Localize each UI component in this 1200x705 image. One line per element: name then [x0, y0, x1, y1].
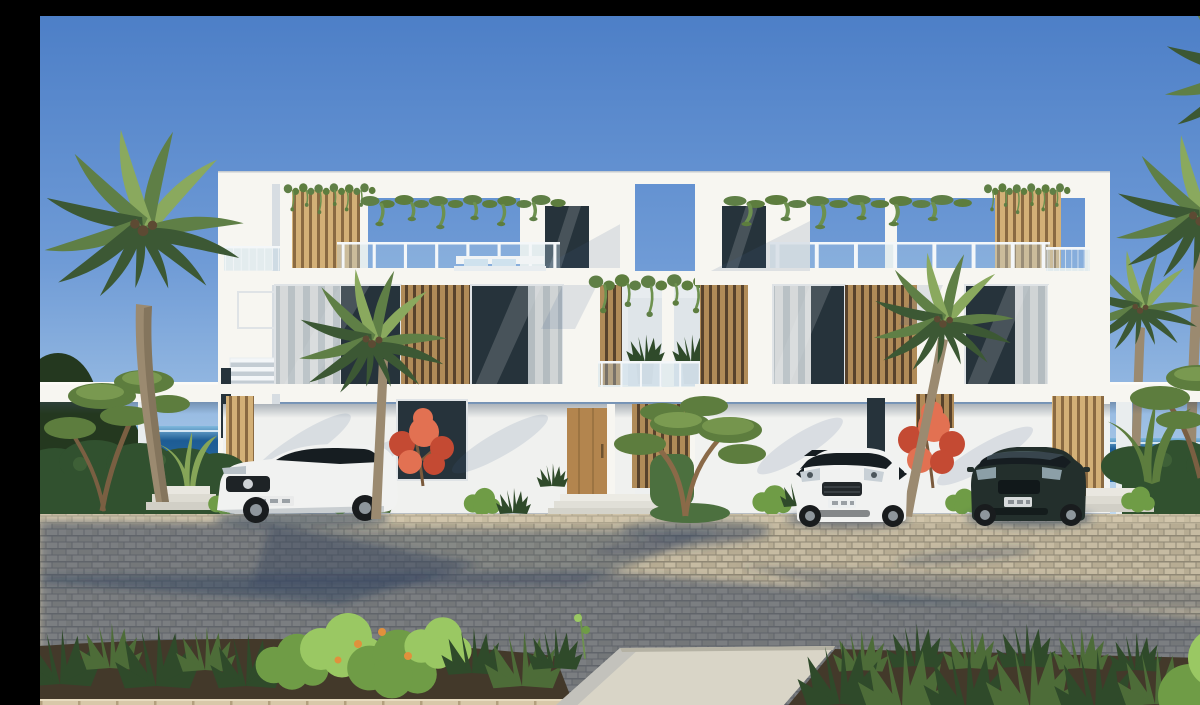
white-suv-mirror-left — [792, 468, 799, 473]
entry-steps-left — [548, 494, 668, 514]
roof-slab — [218, 172, 1110, 184]
dark-suv-grille — [998, 480, 1040, 494]
curtains-right-a — [773, 285, 811, 388]
louver-panel-left-lower — [230, 358, 276, 384]
dark-suv-mirror-right — [1083, 467, 1090, 472]
rooftop-railing-left — [337, 242, 560, 268]
slat-panel-level2-right-inner — [700, 285, 748, 388]
balcony-railing-left-tower — [224, 246, 280, 271]
dark-suv-mirror-left — [967, 467, 974, 472]
car-dark-suv — [967, 447, 1090, 526]
car-white-suv — [792, 448, 911, 527]
rooftop-railing-right — [770, 242, 1050, 268]
door-handle-left — [601, 444, 604, 458]
curtains-right-b — [1015, 285, 1048, 388]
white-suv-grille — [822, 482, 862, 496]
beachfront-townhouses-render — [40, 16, 1200, 705]
rooftop-sofa-left — [454, 256, 546, 272]
white-suv-mirror-right — [904, 468, 911, 473]
rendered-photo: Photorealistic rendering of two symmetri… — [40, 16, 1200, 705]
